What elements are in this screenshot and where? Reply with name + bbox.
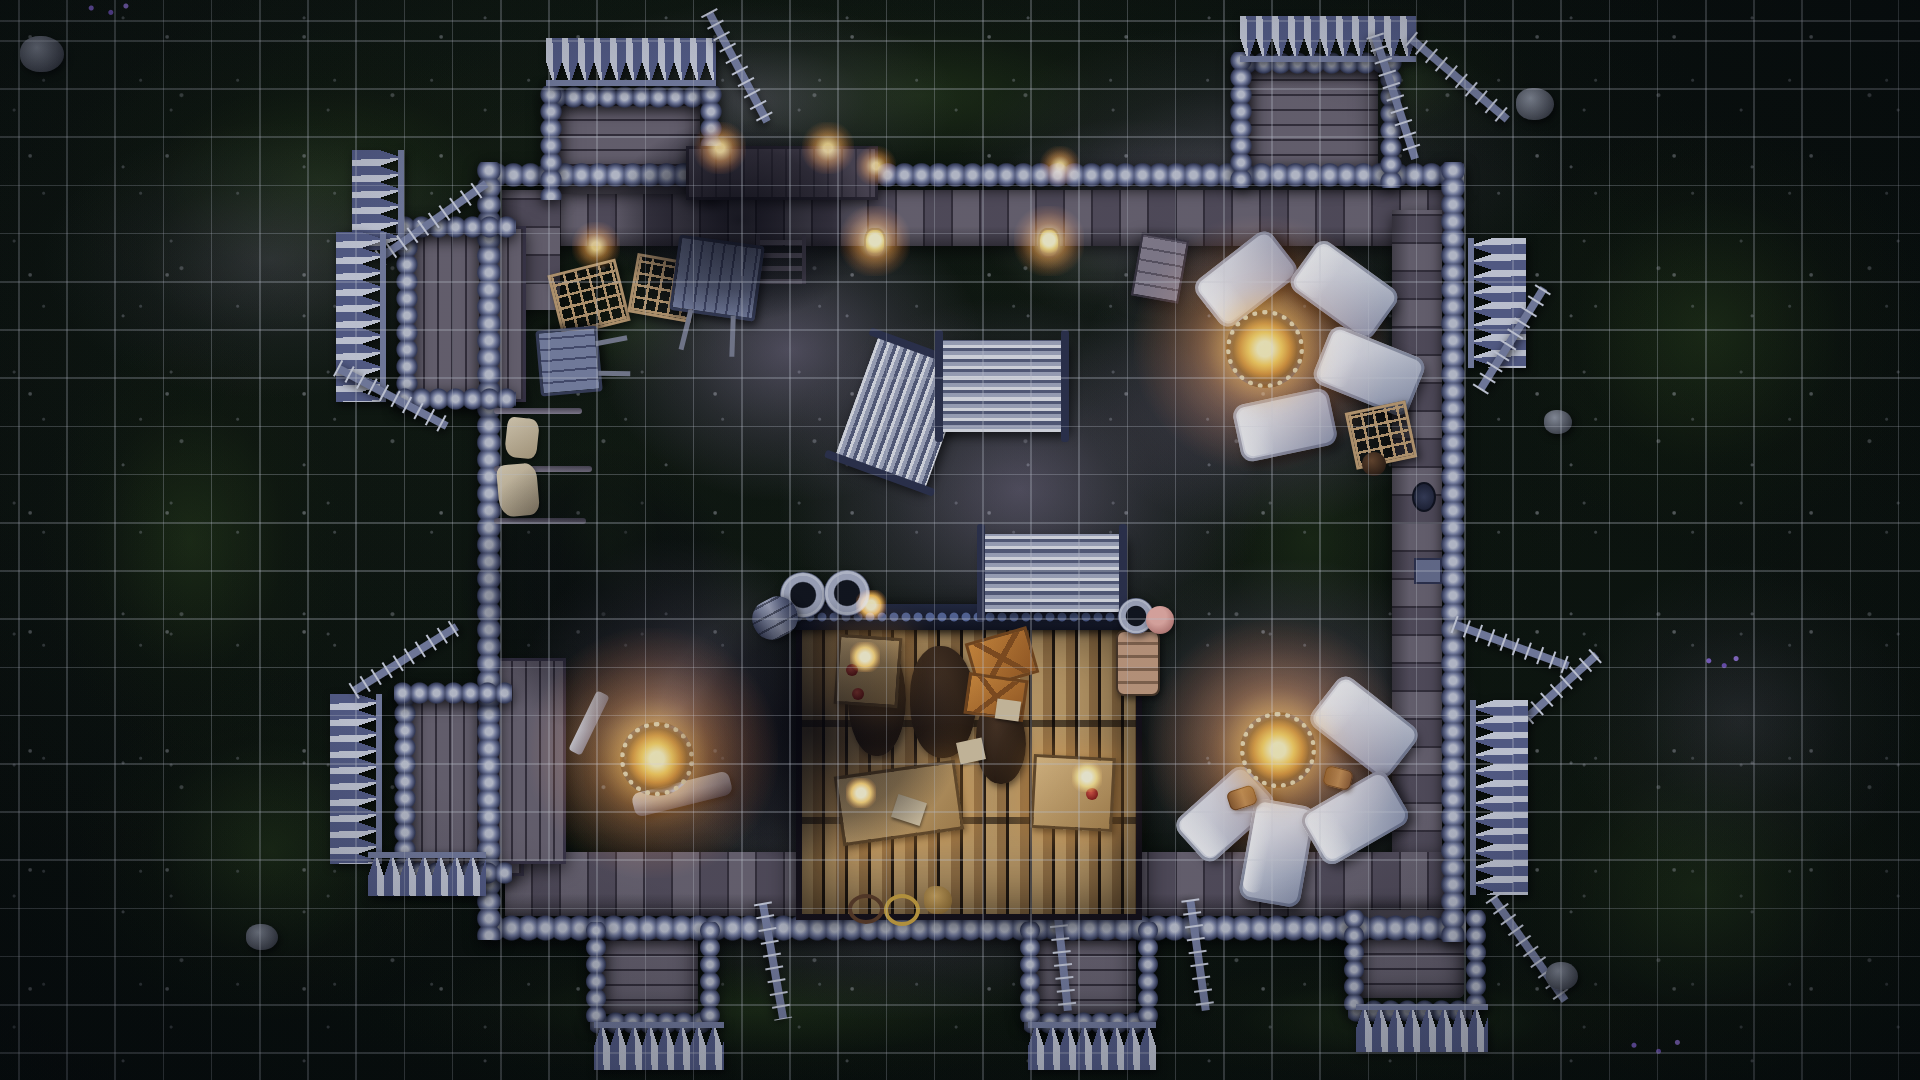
boulder xyxy=(246,924,278,950)
nw-tower-wall xyxy=(540,86,562,200)
supply-sack xyxy=(924,886,952,914)
spike-row xyxy=(1028,1022,1156,1070)
gate-torch-glow xyxy=(694,122,746,174)
lantern-glow xyxy=(1014,206,1084,276)
wall-mounted-box xyxy=(1414,558,1442,584)
scattered-paper xyxy=(995,698,1022,721)
boulder xyxy=(20,36,64,72)
ne-tower-wall xyxy=(1230,52,1252,188)
hand-cart xyxy=(535,325,603,396)
se-gate-tower-wall xyxy=(1020,922,1040,1022)
candle-glow xyxy=(846,778,876,808)
walkway-lantern-glow xyxy=(572,222,620,270)
candle-glow xyxy=(856,590,886,620)
log-pile xyxy=(980,534,1124,612)
unlit-wall-lantern xyxy=(1412,482,1436,512)
spike-row xyxy=(594,1022,724,1070)
rope-coil xyxy=(884,894,920,926)
candle-glow xyxy=(850,642,880,672)
boulder xyxy=(1516,88,1554,120)
campfire-northeast-glow xyxy=(1134,216,1389,471)
spike-row xyxy=(330,694,382,864)
log-pile xyxy=(938,340,1066,432)
campfire-west-glow xyxy=(528,628,778,878)
wall-torch-glow xyxy=(856,146,896,186)
sw-gate-tower-wall xyxy=(586,922,606,1022)
lantern-glow xyxy=(840,206,910,276)
candle-glow xyxy=(1072,762,1102,792)
campfire-southeast-glow xyxy=(1148,618,1403,873)
se-corner-tower-wall xyxy=(1344,910,1364,1010)
flower-patch xyxy=(80,0,136,20)
rope-coil xyxy=(848,894,884,924)
spike-row xyxy=(1470,700,1528,895)
nw-tower-wall xyxy=(548,86,708,108)
se-corner-tower-wall xyxy=(1466,910,1486,1010)
east-palisade-wall xyxy=(1440,162,1466,942)
flower-patch xyxy=(1700,652,1744,674)
sw-gate-tower-wall xyxy=(700,922,720,1022)
boulder xyxy=(1546,962,1578,990)
west-upper-bastion-floor xyxy=(408,226,526,402)
spike-row xyxy=(368,852,486,896)
west-lower-bastion-wall xyxy=(394,688,416,874)
wall-pole xyxy=(494,408,582,414)
se-gate-tower-wall xyxy=(1138,922,1158,1022)
battle-map-canvas[interactable] xyxy=(0,0,1920,1080)
spike-row xyxy=(546,38,716,86)
wall-torch-glow xyxy=(1040,146,1080,186)
flower-patch xyxy=(1620,1034,1690,1062)
gate-torch-glow xyxy=(802,122,854,174)
boulder xyxy=(1544,410,1572,434)
spike-row xyxy=(1356,1004,1488,1052)
